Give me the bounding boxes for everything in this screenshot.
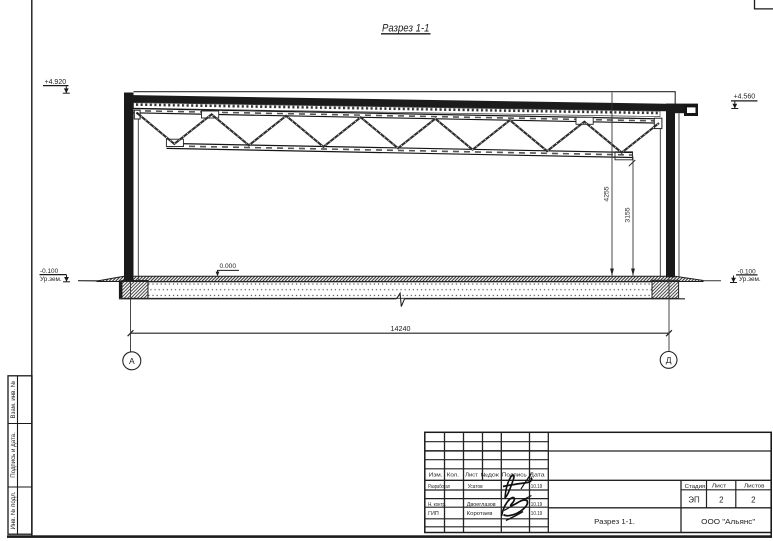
svg-text:10.19: 10.19 [531, 484, 542, 490]
svg-text:14240: 14240 [391, 324, 411, 333]
svg-text:+4.560: +4.560 [734, 94, 756, 101]
svg-text:Кол.: Кол. [447, 473, 459, 479]
svg-text:Инв. № подл.: Инв. № подл. [10, 491, 17, 529]
svg-text:Д: Д [666, 355, 672, 365]
svg-text:4255: 4255 [604, 186, 611, 201]
svg-text:Разрез 1-1.: Разрез 1-1. [594, 517, 635, 526]
svg-text:Н. контр.: Н. контр. [428, 502, 446, 508]
svg-text:Лист: Лист [712, 484, 727, 490]
svg-text:Ур.зем.: Ур.зем. [40, 276, 62, 283]
svg-text:Разработал: Разработал [428, 484, 450, 490]
svg-text:Двоеглазов: Двоеглазов [467, 502, 496, 508]
svg-text:3155: 3155 [625, 207, 632, 222]
svg-text:Усатов: Усатов [468, 484, 483, 490]
svg-text:Стадия: Стадия [685, 484, 706, 490]
svg-text:Разрез 1-1: Разрез 1-1 [382, 22, 430, 34]
svg-text:Лист: Лист [465, 473, 478, 479]
svg-text:Подпись и дата.: Подпись и дата. [10, 432, 17, 478]
svg-text:Коротаев: Коротаев [467, 511, 493, 517]
svg-text:ГИП: ГИП [428, 511, 439, 517]
svg-text:Листов: Листов [744, 484, 765, 490]
svg-text:№док: №док [480, 473, 499, 479]
svg-text:Ур.зем.: Ур.зем. [739, 276, 761, 283]
svg-text:Изм.: Изм. [429, 473, 443, 479]
svg-text:ЭП: ЭП [688, 496, 700, 505]
svg-text:10.19: 10.19 [531, 511, 542, 517]
svg-text:ООО "Альянс": ООО "Альянс" [701, 517, 755, 526]
svg-text:Взам. инв. №: Взам. инв. № [10, 381, 17, 419]
svg-text:0.000: 0.000 [220, 263, 237, 270]
svg-text:2: 2 [719, 496, 724, 505]
svg-text:2: 2 [751, 496, 756, 505]
svg-text:10.19: 10.19 [531, 502, 542, 508]
svg-text:А: А [129, 356, 135, 366]
